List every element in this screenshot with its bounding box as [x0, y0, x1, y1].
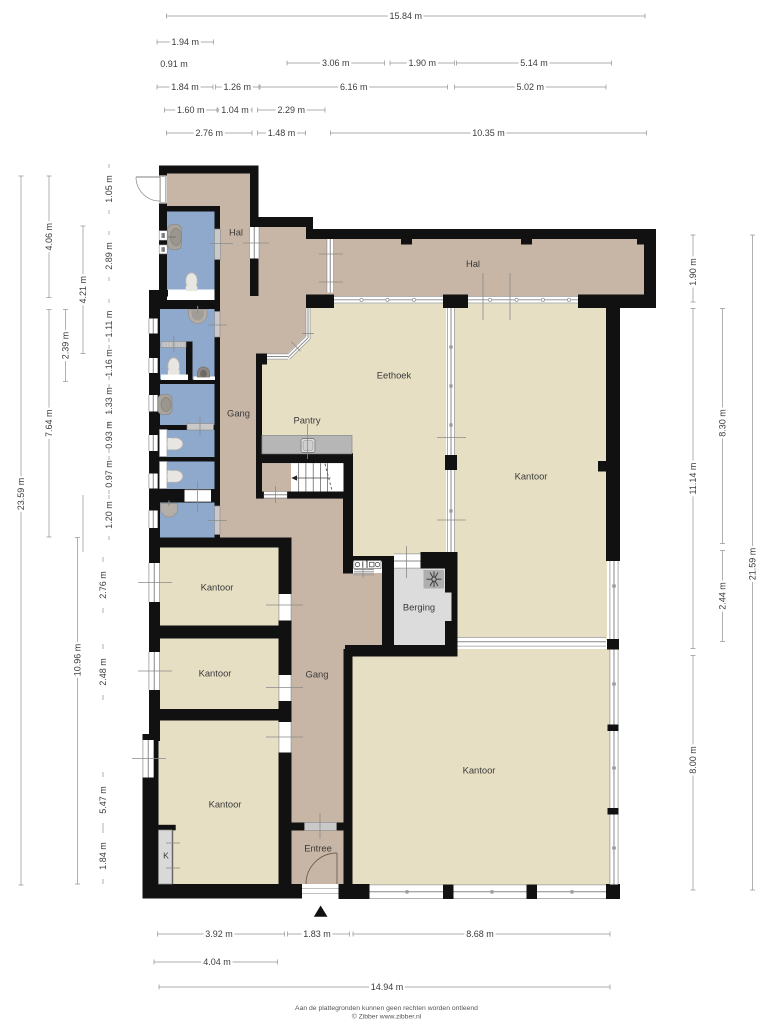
svg-text:K: K	[163, 851, 169, 861]
svg-text:8.68 m: 8.68 m	[466, 929, 494, 939]
svg-text:15.84 m: 15.84 m	[389, 11, 422, 21]
svg-text:1.83 m: 1.83 m	[303, 929, 331, 939]
svg-text:Hal: Hal	[466, 258, 480, 269]
svg-text:1.90 m: 1.90 m	[408, 58, 436, 68]
svg-text:2.29 m: 2.29 m	[277, 105, 305, 115]
svg-text:3.06 m: 3.06 m	[322, 58, 350, 68]
svg-text:4.04 m: 4.04 m	[203, 957, 231, 967]
svg-text:1.26 m: 1.26 m	[223, 82, 251, 92]
svg-text:1.04 m: 1.04 m	[221, 105, 249, 115]
svg-text:14.94 m: 14.94 m	[371, 982, 404, 992]
svg-text:6.16 m: 6.16 m	[340, 82, 368, 92]
svg-text:23.59 m: 23.59 m	[16, 478, 26, 511]
svg-text:Entree: Entree	[304, 843, 332, 854]
svg-text:2.89 m: 2.89 m	[104, 242, 114, 270]
svg-text:1.05 m: 1.05 m	[104, 175, 114, 203]
svg-text:1.84 m: 1.84 m	[98, 842, 108, 870]
svg-text:1.20 m: 1.20 m	[104, 501, 114, 529]
svg-text:1.84 m: 1.84 m	[171, 82, 199, 92]
svg-text:Kantoor: Kantoor	[199, 668, 232, 679]
svg-text:0.91 m: 0.91 m	[160, 59, 188, 69]
svg-text:8.30 m: 8.30 m	[718, 409, 728, 437]
svg-text:1.94 m: 1.94 m	[171, 37, 199, 47]
svg-text:Kantoor: Kantoor	[201, 582, 234, 593]
svg-text:2.39 m: 2.39 m	[61, 332, 71, 360]
svg-text:Gang: Gang	[227, 408, 250, 419]
svg-text:5.02 m: 5.02 m	[516, 82, 544, 92]
svg-text:Aan de plattegronden kunnen ge: Aan de plattegronden kunnen geen rechten…	[295, 1005, 478, 1012]
svg-text:0.93 m: 0.93 m	[104, 421, 114, 449]
svg-text:8.00 m: 8.00 m	[688, 746, 698, 774]
svg-text:Kantoor: Kantoor	[515, 471, 548, 482]
svg-text:Hal: Hal	[229, 227, 243, 238]
svg-text:1.48 m: 1.48 m	[268, 128, 296, 138]
svg-text:21.59 m: 21.59 m	[748, 548, 758, 581]
svg-text:Kantoor: Kantoor	[463, 765, 496, 776]
svg-text:2.48 m: 2.48 m	[98, 658, 108, 686]
svg-text:2.76 m: 2.76 m	[98, 571, 108, 599]
svg-text:Eethoek: Eethoek	[377, 370, 412, 381]
svg-text:10.35 m: 10.35 m	[472, 128, 505, 138]
svg-text:10.96 m: 10.96 m	[73, 644, 83, 677]
svg-text:5.47 m: 5.47 m	[98, 786, 108, 814]
svg-text:Kantoor: Kantoor	[209, 799, 242, 810]
svg-text:Gang: Gang	[306, 669, 329, 680]
svg-text:1.16 m: 1.16 m	[104, 349, 114, 377]
svg-text:Berging: Berging	[403, 602, 435, 613]
svg-text:2.76 m: 2.76 m	[195, 128, 223, 138]
svg-text:1.90 m: 1.90 m	[688, 258, 698, 286]
svg-text:2.44 m: 2.44 m	[718, 582, 728, 610]
svg-text:4.06 m: 4.06 m	[44, 223, 54, 251]
svg-text:1.11 m: 1.11 m	[104, 311, 114, 338]
svg-text:0.97 m: 0.97 m	[104, 460, 114, 488]
svg-text:5.14 m: 5.14 m	[520, 58, 548, 68]
svg-text:Pantry: Pantry	[293, 415, 320, 426]
svg-text:4.21 m: 4.21 m	[78, 276, 88, 304]
svg-text:1.60 m: 1.60 m	[177, 105, 205, 115]
svg-text:7.64 m: 7.64 m	[44, 409, 54, 437]
svg-text:11.14 m: 11.14 m	[688, 463, 698, 495]
svg-text:© Zibber www.zibber.nl: © Zibber www.zibber.nl	[352, 1013, 422, 1021]
svg-text:3.92 m: 3.92 m	[205, 929, 233, 939]
